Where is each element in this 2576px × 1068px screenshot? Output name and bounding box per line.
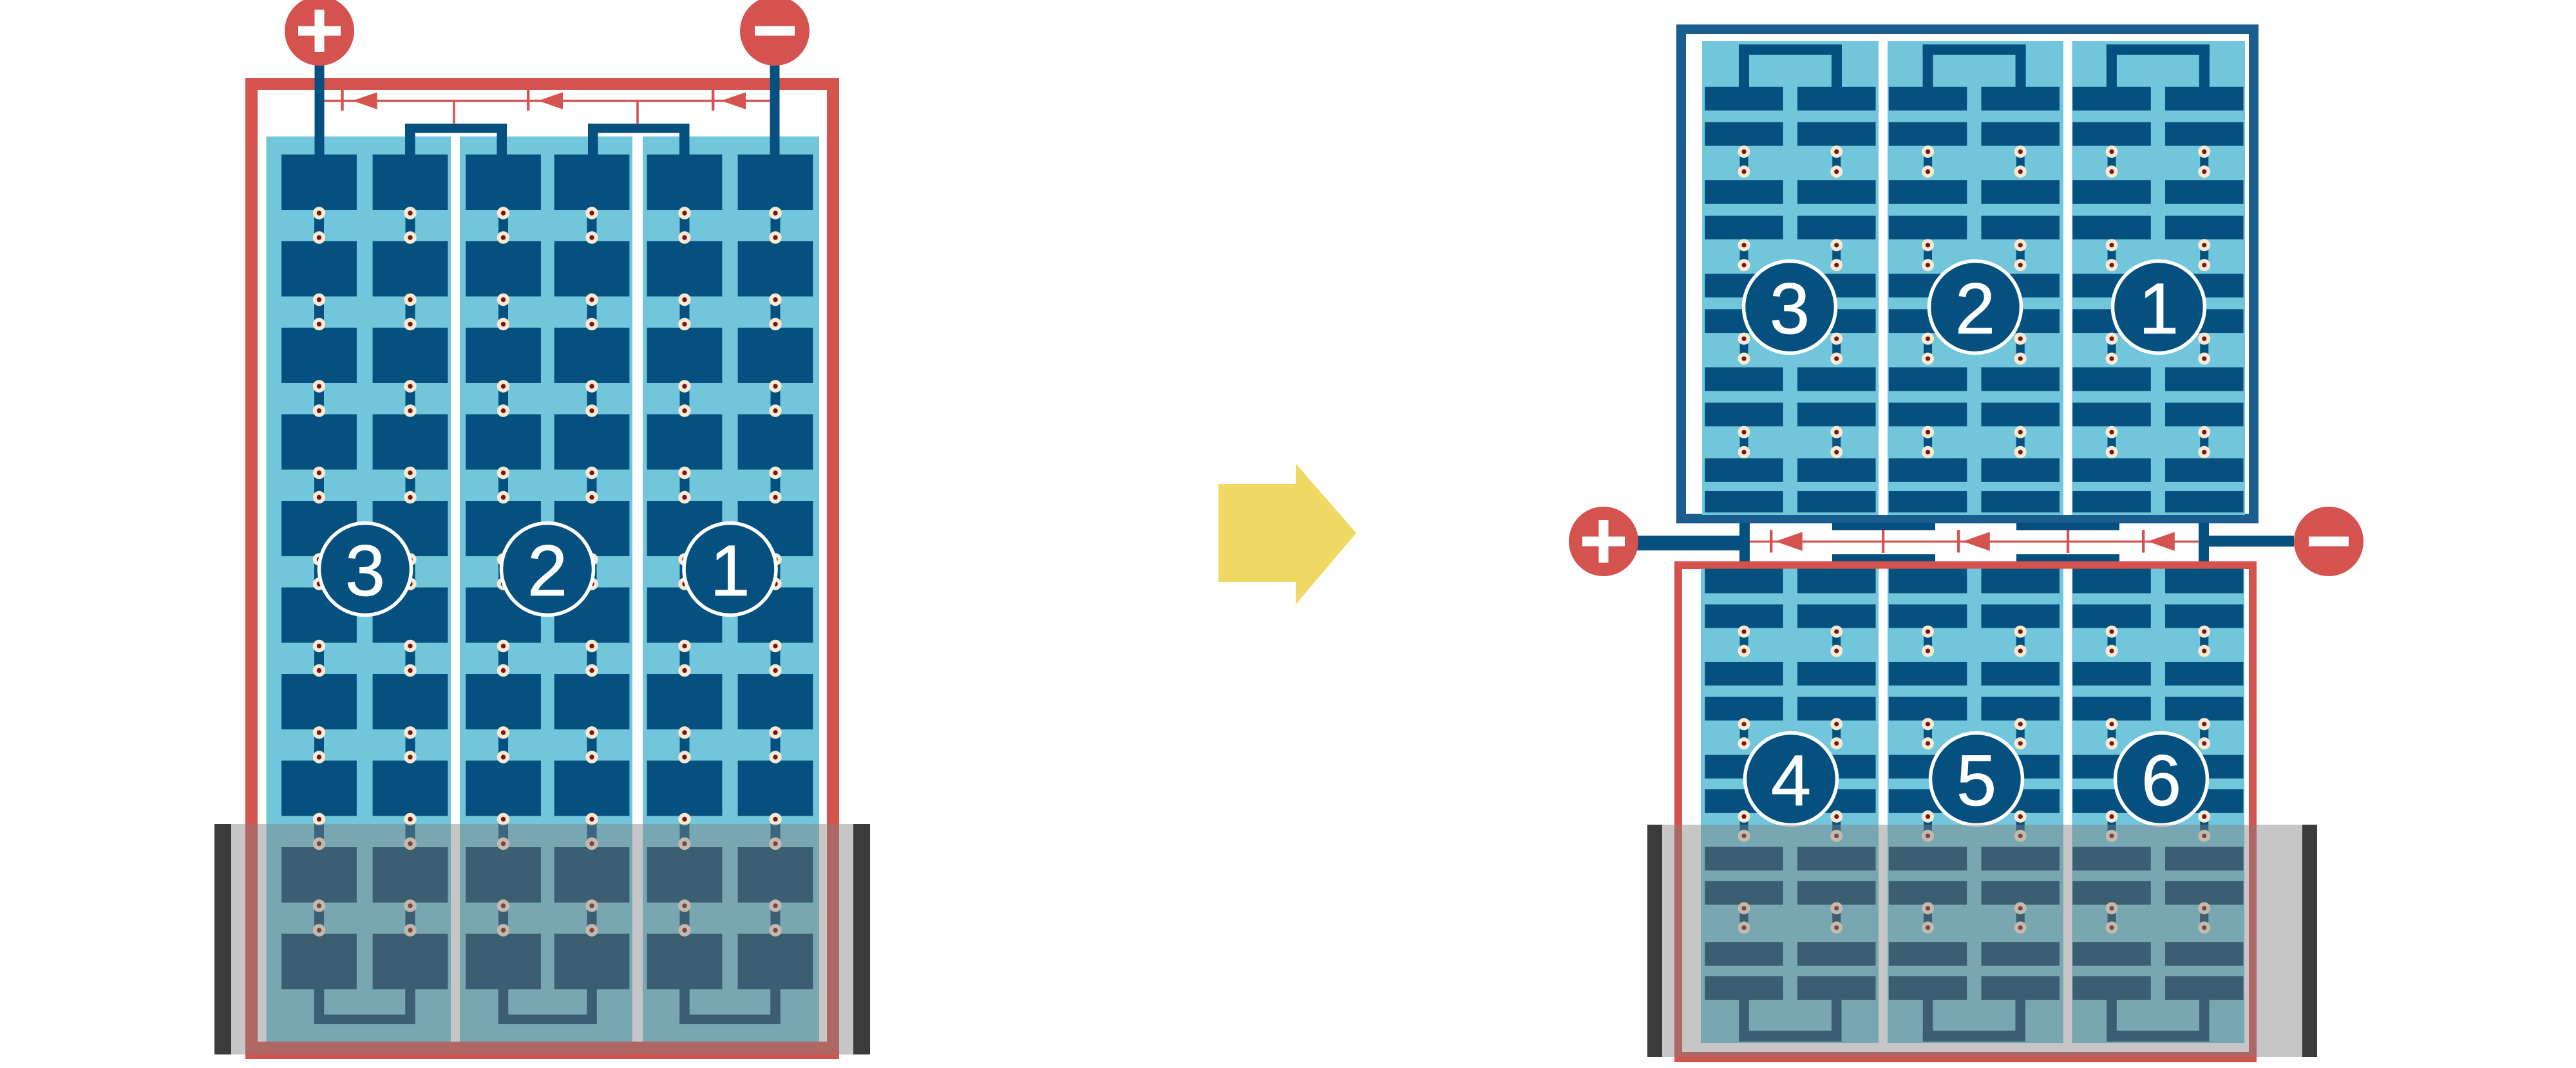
svg-text:1: 1	[2139, 268, 2179, 349]
svg-text:2: 2	[527, 530, 567, 611]
svg-text:6: 6	[2141, 740, 2181, 821]
svg-text:3: 3	[1770, 268, 1810, 349]
svg-text:5: 5	[1956, 740, 1996, 821]
svg-text:3: 3	[345, 530, 385, 611]
svg-text:4: 4	[1771, 740, 1811, 821]
svg-text:1: 1	[710, 530, 750, 611]
svg-text:2: 2	[1955, 268, 1995, 349]
